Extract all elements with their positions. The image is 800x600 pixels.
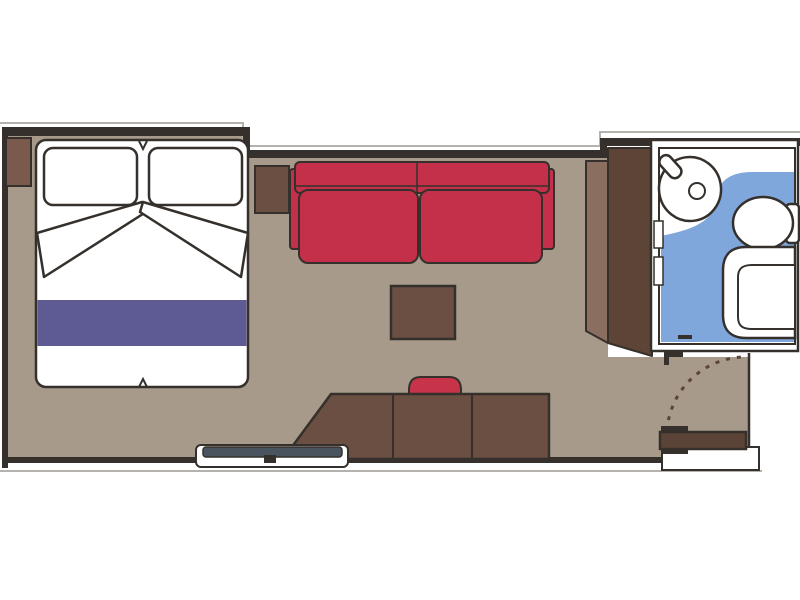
- pillow-right: [149, 148, 242, 205]
- toilet: [733, 197, 799, 249]
- wardrobe-panel-right: [608, 148, 652, 356]
- washbasin-drain: [689, 183, 705, 199]
- sofa-side-table: [255, 166, 289, 213]
- bathroom-wall-shelf-upper: [654, 221, 663, 248]
- entry-door: [660, 432, 746, 449]
- sofa-backrest: [295, 162, 549, 193]
- sofa-cushion-right: [420, 190, 542, 263]
- two-seat-sofa: [290, 162, 554, 263]
- bathroom-wall-shelf-lower: [654, 257, 663, 285]
- coffee-table: [391, 286, 455, 339]
- pillow-left: [44, 148, 137, 205]
- shower: [723, 247, 795, 338]
- floor-plan-page: [0, 0, 800, 600]
- wardrobe: [586, 148, 652, 356]
- shower-door-mark: [678, 335, 692, 339]
- luggage-bench: [196, 445, 348, 467]
- wardrobe-panel-left: [586, 161, 608, 343]
- sofa-cushion-left: [299, 190, 418, 263]
- toilet-bowl: [733, 197, 793, 249]
- purple-bed-runner: [38, 300, 247, 346]
- nightstand: [6, 138, 31, 186]
- wall-top-over-sofa: [243, 150, 605, 158]
- shower-tray: [738, 265, 795, 329]
- double-bed: [36, 140, 248, 387]
- bench-center-mark: [264, 455, 276, 463]
- bathroom: [651, 140, 799, 351]
- wall-top-over-bed: [2, 127, 248, 136]
- floor-plan-canvas: [0, 0, 800, 600]
